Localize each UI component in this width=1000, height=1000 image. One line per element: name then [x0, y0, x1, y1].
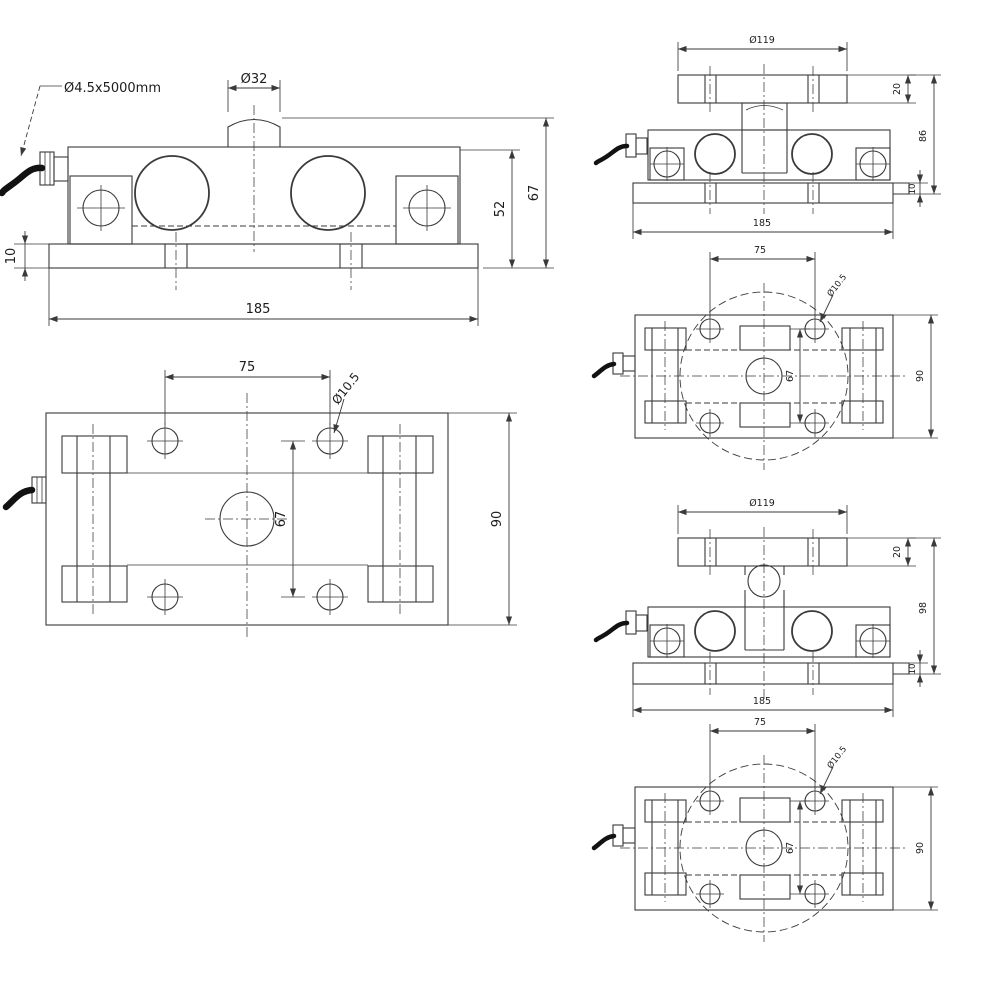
- clamp-tab: [62, 566, 127, 602]
- dim-length: 185: [753, 696, 771, 707]
- plate-slot: [740, 403, 790, 427]
- cable: [6, 490, 32, 507]
- base-plate: [633, 663, 893, 684]
- shear-hole-left: [135, 156, 209, 230]
- shear-hole-right: [792, 611, 832, 651]
- dim-plate-thk: 20: [892, 546, 903, 558]
- base-plate: [49, 244, 478, 268]
- clamp-tab: [842, 401, 883, 423]
- base-tab: [893, 663, 909, 674]
- dim-button-dia: Ø32: [241, 72, 268, 87]
- drawing-sheet: Ø4.5x5000mm Ø32 10 185 52 67: [0, 0, 1000, 1000]
- cable-gland: [636, 615, 647, 631]
- cable-gland: [623, 356, 635, 371]
- dim-base-thk: 10: [908, 664, 918, 675]
- dim-width: 90: [915, 370, 926, 382]
- dim-pitch-x: 75: [239, 360, 256, 375]
- shear-hole-right: [792, 134, 832, 174]
- mount-holes: [696, 787, 829, 908]
- dim-pitch-y: 67: [785, 370, 796, 382]
- dim-length: 185: [753, 218, 771, 229]
- mounted-flat-plan-view: 75 Ø10.5 67 90: [594, 245, 938, 470]
- dim-hole-dia: Ø10.5: [825, 744, 849, 771]
- pillar-dome: [746, 106, 783, 111]
- clamp-tab: [645, 401, 686, 423]
- leader-cable: [21, 86, 40, 156]
- plate-slot: [740, 326, 790, 350]
- clamp-tab: [645, 873, 686, 895]
- clamp-tab: [368, 436, 433, 473]
- cable-gland: [636, 138, 647, 154]
- technical-drawing: Ø4.5x5000mm Ø32 10 185 52 67: [0, 0, 1000, 1000]
- cable-gland: [623, 828, 635, 843]
- dim-width: 90: [490, 511, 505, 528]
- plate-slot: [740, 798, 790, 822]
- dim-pitch-y: 67: [274, 511, 289, 528]
- dim-plate-dia: Ø119: [749, 35, 775, 46]
- loadcell-body: [68, 147, 460, 244]
- top-plate: [678, 75, 847, 103]
- mounted-ball-plan-view: 75 Ø10.5 67 90: [594, 717, 938, 942]
- shear-hole-left: [695, 611, 735, 651]
- dim-height: 86: [918, 130, 929, 142]
- plan-view: 75 Ø10.5 67 90: [6, 360, 517, 637]
- clamp-tab: [842, 800, 883, 822]
- side-view: Ø4.5x5000mm Ø32 10 185 52 67: [2, 72, 554, 326]
- dim-width: 90: [915, 842, 926, 854]
- load-pillar: [742, 103, 787, 130]
- mounted-flat-side-view: Ø119 20 86 10 185: [596, 35, 941, 239]
- dim-plate-dia: Ø119: [749, 498, 775, 509]
- dim-height-to-base: 52: [493, 201, 508, 218]
- cable: [596, 623, 627, 640]
- dim-hole-dia: Ø10.5: [329, 370, 362, 407]
- dim-plate-thk: 20: [892, 83, 903, 95]
- plate-slot: [740, 875, 790, 899]
- shear-hole-left: [695, 134, 735, 174]
- cable: [594, 364, 614, 376]
- dim-cable: Ø4.5x5000mm: [64, 81, 161, 96]
- cable-gland: [54, 157, 68, 181]
- dim-hole-dia: Ø10.5: [825, 272, 849, 299]
- leader-hole: [820, 767, 833, 794]
- dim-pitch-y: 67: [785, 842, 796, 854]
- clamp-tab: [62, 436, 127, 473]
- cable: [594, 836, 614, 848]
- base-tab: [893, 183, 909, 194]
- dim-pitch-x: 75: [754, 717, 766, 728]
- dim-length: 185: [246, 302, 271, 317]
- clamp-tab: [368, 566, 433, 602]
- shear-hole-right: [291, 156, 365, 230]
- clamp-tab: [842, 873, 883, 895]
- dim-height: 98: [918, 602, 929, 614]
- dim-base-thk: 10: [4, 248, 19, 265]
- dim-height-total: 67: [527, 185, 542, 202]
- dim-base-thk: 10: [908, 184, 918, 195]
- cable: [596, 146, 627, 163]
- top-plate: [678, 538, 847, 566]
- base-plate: [633, 183, 893, 203]
- clamp-tab: [645, 800, 686, 822]
- mounted-ball-side-view: Ø119 20 98 10 185: [596, 498, 941, 717]
- dim-pitch-x: 75: [754, 245, 766, 256]
- clamp-tab: [842, 328, 883, 350]
- clamp-tab: [645, 328, 686, 350]
- cable: [2, 168, 42, 193]
- leader-hole: [820, 295, 833, 322]
